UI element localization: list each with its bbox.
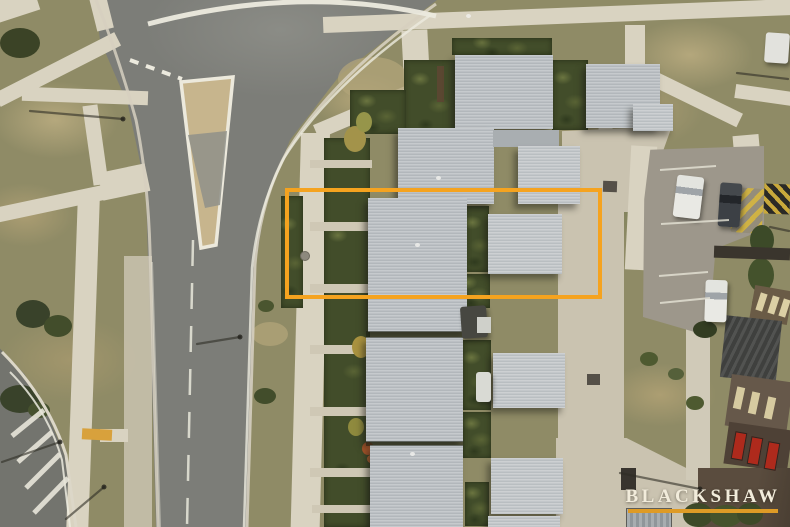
brand-watermark: BLACKSHAW <box>625 486 781 508</box>
centre-line <box>187 240 193 527</box>
property-boundary-overlay <box>285 188 602 299</box>
brand-underline <box>628 509 778 513</box>
chevron-markings <box>12 410 68 513</box>
parking-bay-lines <box>659 166 729 303</box>
kerb-line <box>96 0 158 527</box>
lane-dashes <box>130 60 182 79</box>
corner-kerb-line <box>2 352 76 527</box>
roundabout-apron-line <box>148 2 436 24</box>
aerial-photo: BLACKSHAW <box>0 0 790 527</box>
